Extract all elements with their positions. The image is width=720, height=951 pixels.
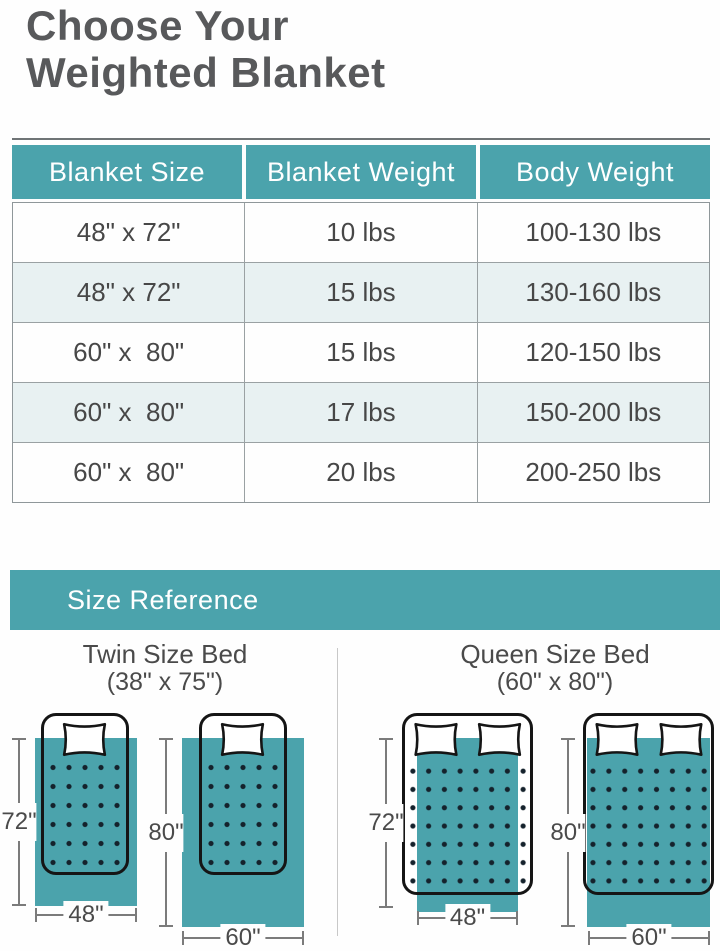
pillow-icon: [658, 721, 704, 758]
dimension-label: 80": [550, 814, 585, 852]
queen-subtitle: (60" x 80"): [390, 668, 720, 696]
blanket-dots: [405, 762, 531, 890]
dimension-label: 48": [63, 901, 108, 929]
header-blanket-size: Blanket Size: [12, 145, 242, 199]
page-title: Choose Your Weighted Blanket: [26, 2, 386, 96]
cell-body-weight: 130-160 lbs: [478, 263, 709, 322]
dimension-height: 72": [379, 738, 393, 908]
pillow-icon: [412, 721, 460, 758]
cell-blanket-weight: 10 lbs: [245, 203, 477, 262]
pillow-icon: [61, 721, 108, 758]
cell-blanket-weight: 15 lbs: [245, 323, 477, 382]
twin-subtitle: (38" x 75"): [0, 668, 330, 696]
pillow-icon: [476, 721, 523, 758]
cell-body-weight: 120-150 lbs: [478, 323, 709, 382]
page-title-line1: Choose Your: [26, 2, 386, 49]
dimension-label: 80": [148, 814, 183, 852]
twin-title: Twin Size Bed: [0, 640, 330, 668]
cell-body-weight: 200-250 lbs: [478, 443, 709, 502]
cell-blanket-weight: 20 lbs: [245, 443, 477, 502]
cell-body-weight: 150-200 lbs: [478, 383, 709, 442]
blanket-dots: [203, 758, 283, 872]
table-top-rule: [12, 138, 710, 140]
header-blanket-weight: Blanket Weight: [246, 145, 476, 199]
dimension-width: 48": [35, 908, 137, 922]
dimension-height: 80": [159, 738, 173, 927]
cell-blanket-size: 48" x 72": [13, 203, 245, 262]
twin-section-title: Twin Size Bed (38" x 75"): [0, 640, 330, 696]
cell-blanket-size: 60" x 80": [13, 383, 245, 442]
dimension-width: 60": [588, 931, 710, 945]
cell-blanket-size: 60" x 80": [13, 443, 245, 502]
table-row: 60" x 80" 15 lbs 120-150 lbs: [13, 323, 709, 383]
pillow-icon: [594, 721, 640, 758]
dimension-height: 80": [561, 738, 575, 927]
queen-section-title: Queen Size Bed (60" x 80"): [390, 640, 720, 696]
header-body-weight: Body Weight: [480, 145, 710, 199]
cell-blanket-weight: 17 lbs: [245, 383, 477, 442]
table-row: 48" x 72" 15 lbs 130-160 lbs: [13, 263, 709, 323]
size-reference-banner-label: Size Reference: [67, 585, 259, 616]
table-row: 48" x 72" 10 lbs 100-130 lbs: [13, 203, 709, 263]
queen-title: Queen Size Bed: [390, 640, 720, 668]
dimension-label: 60": [626, 924, 671, 951]
size-reference-banner: Size Reference: [10, 570, 720, 630]
weighted-blanket-infographic: Choose Your Weighted Blanket Blanket Siz…: [0, 0, 720, 951]
cell-body-weight: 100-130 lbs: [478, 203, 709, 262]
dimension-width: 60": [182, 931, 304, 945]
dimension-label: 72": [368, 804, 403, 842]
cell-blanket-size: 48" x 72": [13, 263, 245, 322]
dimension-width: 48": [417, 911, 518, 925]
pillow-icon: [219, 721, 266, 758]
table-row: 60" x 80" 17 lbs 150-200 lbs: [13, 383, 709, 443]
dimension-label: 72": [1, 803, 36, 841]
cell-blanket-weight: 15 lbs: [245, 263, 477, 322]
page-title-line2: Weighted Blanket: [26, 49, 386, 96]
dimension-height: 72": [12, 738, 26, 906]
table-row: 60" x 80" 20 lbs 200-250 lbs: [13, 443, 709, 502]
blanket-dots: [585, 762, 712, 890]
blanket-dots: [45, 758, 125, 872]
sizing-table-header: Blanket Size Blanket Weight Body Weight: [12, 145, 710, 199]
section-divider: [337, 648, 338, 936]
dimension-label: 48": [445, 904, 490, 932]
cell-blanket-size: 60" x 80": [13, 323, 245, 382]
dimension-label: 60": [220, 924, 265, 951]
sizing-table: Blanket Size Blanket Weight Body Weight …: [12, 145, 710, 503]
sizing-table-body: 48" x 72" 10 lbs 100-130 lbs 48" x 72" 1…: [12, 202, 710, 503]
